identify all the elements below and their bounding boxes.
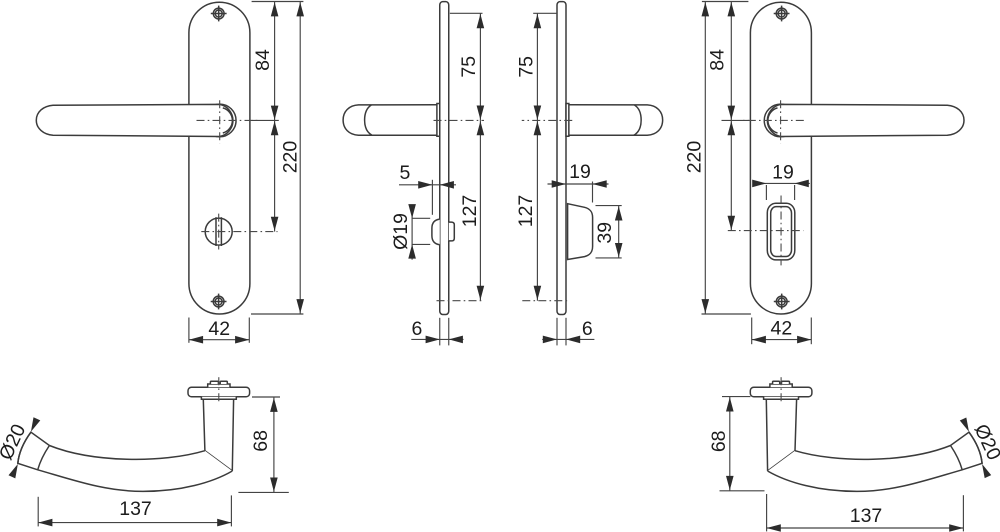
svg-text:42: 42 xyxy=(771,317,793,339)
svg-text:5: 5 xyxy=(399,162,410,184)
svg-text:6: 6 xyxy=(582,318,593,340)
svg-text:6: 6 xyxy=(411,318,422,340)
svg-text:220: 220 xyxy=(683,141,705,174)
svg-text:75: 75 xyxy=(515,56,537,78)
svg-text:19: 19 xyxy=(772,161,794,183)
svg-text:39: 39 xyxy=(594,222,616,244)
svg-text:84: 84 xyxy=(252,49,274,71)
svg-text:42: 42 xyxy=(208,318,230,340)
svg-text:137: 137 xyxy=(119,498,152,520)
svg-text:127: 127 xyxy=(515,195,537,228)
svg-text:Ø19: Ø19 xyxy=(390,213,412,250)
svg-text:19: 19 xyxy=(569,161,591,183)
svg-text:68: 68 xyxy=(250,430,272,452)
svg-text:137: 137 xyxy=(850,505,883,527)
svg-text:220: 220 xyxy=(279,141,301,174)
svg-text:84: 84 xyxy=(706,49,728,71)
svg-text:75: 75 xyxy=(458,56,480,78)
svg-text:68: 68 xyxy=(708,430,730,452)
svg-text:127: 127 xyxy=(459,195,481,228)
